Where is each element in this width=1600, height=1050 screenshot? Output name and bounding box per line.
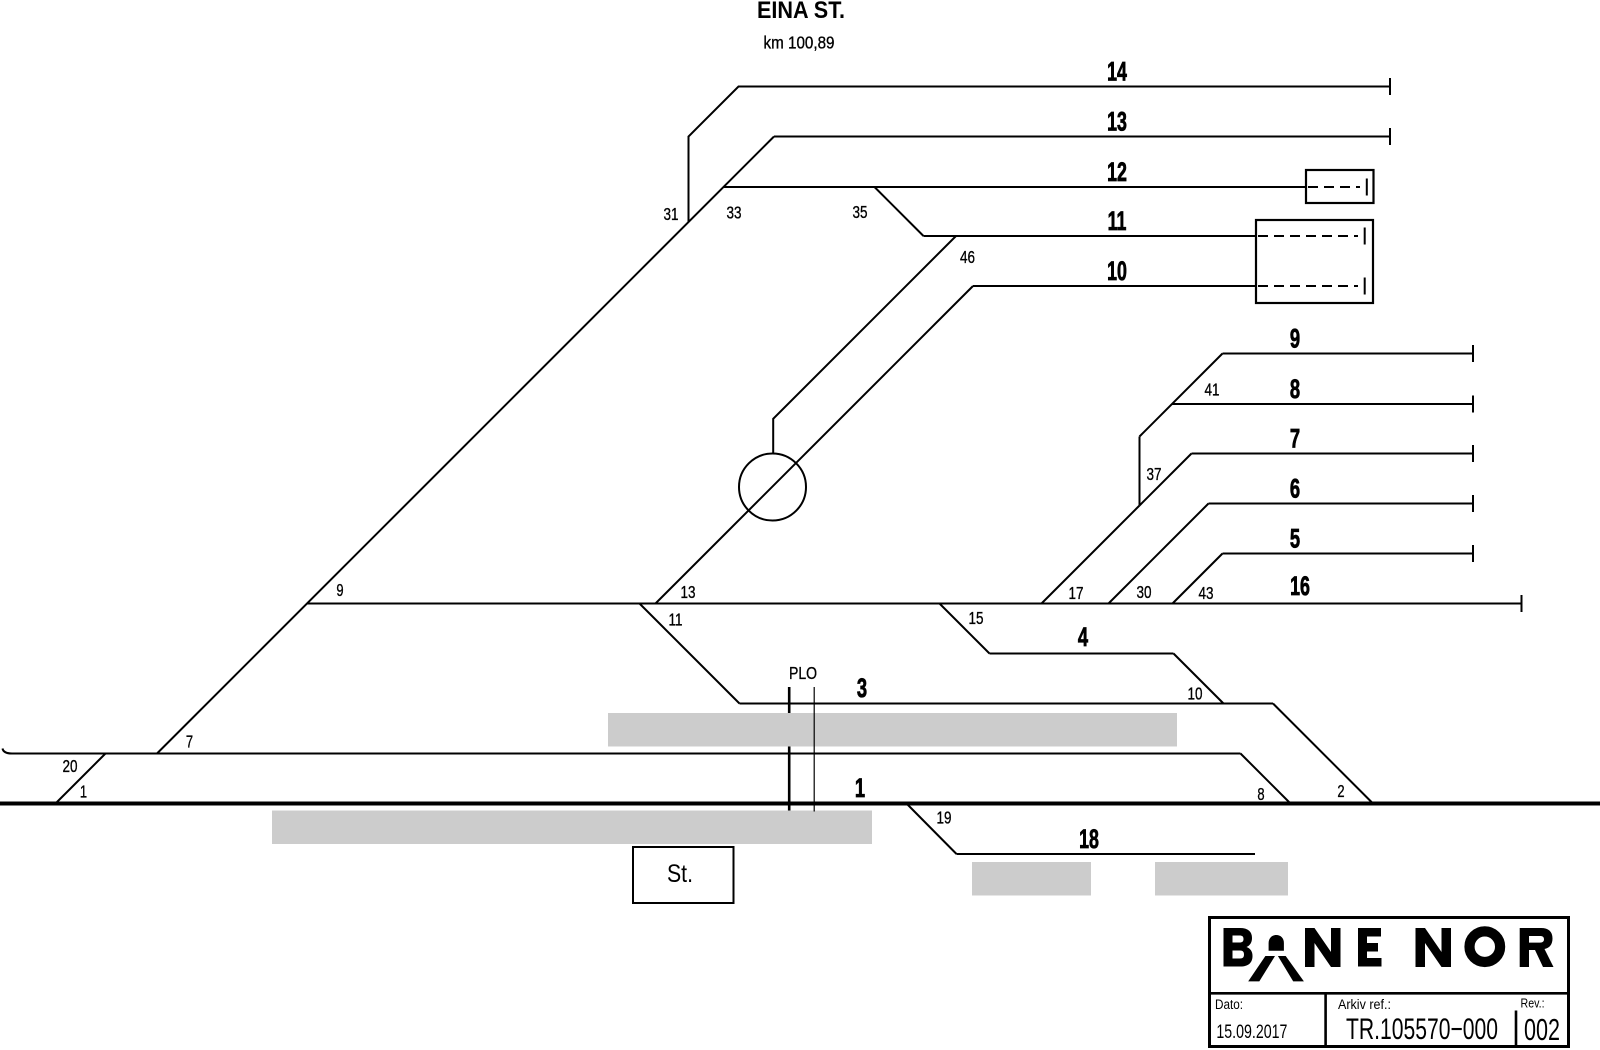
svg-text:31: 31 (663, 205, 678, 224)
svg-text:3: 3 (857, 672, 867, 702)
svg-text:EINA ST.: EINA ST. (757, 0, 845, 23)
svg-text:8: 8 (1290, 373, 1300, 403)
svg-text:14: 14 (1107, 56, 1127, 87)
svg-text:13: 13 (1107, 106, 1127, 137)
svg-text:13: 13 (680, 583, 695, 602)
svg-text:19: 19 (936, 809, 951, 828)
svg-text:10: 10 (1107, 255, 1127, 286)
svg-text:5: 5 (1290, 523, 1300, 553)
svg-text:18: 18 (1079, 823, 1099, 854)
svg-text:16: 16 (1290, 570, 1310, 601)
svg-text:Rev.:: Rev.: (1521, 995, 1545, 1010)
svg-text:12: 12 (1107, 156, 1127, 187)
svg-text:9: 9 (1290, 323, 1300, 353)
svg-text:Arkiv ref.:: Arkiv ref.: (1338, 996, 1391, 1012)
svg-text:11: 11 (1108, 205, 1127, 236)
svg-text:30: 30 (1136, 583, 1151, 602)
svg-text:41: 41 (1204, 381, 1219, 400)
svg-text:9: 9 (336, 581, 343, 601)
svg-text:1: 1 (855, 772, 865, 802)
svg-text:6: 6 (1290, 473, 1300, 503)
svg-text:PLO: PLO (789, 663, 817, 683)
svg-text:1: 1 (80, 783, 87, 803)
svg-text:35: 35 (852, 203, 867, 222)
svg-text:17: 17 (1068, 584, 1083, 603)
svg-text:37: 37 (1146, 465, 1161, 484)
svg-text:11: 11 (668, 611, 682, 630)
svg-text:4: 4 (1078, 621, 1088, 651)
svg-text:002: 002 (1524, 1012, 1560, 1047)
svg-text:St.: St. (667, 859, 693, 887)
svg-text:46: 46 (960, 248, 975, 267)
svg-text:33: 33 (726, 204, 741, 223)
svg-text:8: 8 (1257, 785, 1264, 805)
svg-text:km 100,89: km 100,89 (764, 32, 835, 53)
svg-text:7: 7 (1290, 423, 1300, 453)
svg-text:7: 7 (186, 733, 193, 753)
svg-text:15.09.2017: 15.09.2017 (1216, 1021, 1287, 1043)
svg-text:Dato:: Dato: (1215, 996, 1243, 1012)
svg-text:2: 2 (1337, 782, 1344, 802)
svg-text:10: 10 (1187, 685, 1202, 704)
svg-text:15: 15 (968, 609, 983, 628)
svg-text:TR.105570−000: TR.105570−000 (1346, 1014, 1498, 1046)
svg-text:20: 20 (62, 757, 77, 776)
svg-text:43: 43 (1198, 584, 1213, 603)
